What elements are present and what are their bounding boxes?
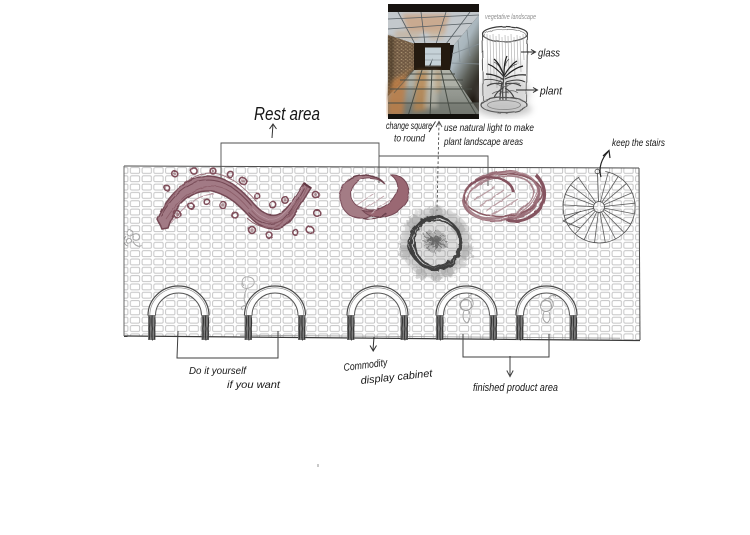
- svg-text:vegetative landscape: vegetative landscape: [485, 14, 536, 21]
- svg-text:Do it yourself: Do it yourself: [189, 365, 247, 377]
- svg-text:if you want: if you want: [227, 379, 281, 391]
- svg-text:use natural light to make: use natural light to make: [444, 122, 534, 134]
- svg-text:plant landscape areas: plant landscape areas: [443, 136, 523, 148]
- svg-text:to round: to round: [394, 133, 426, 145]
- svg-text:Rest area: Rest area: [254, 103, 320, 124]
- svg-text:keep the stairs: keep the stairs: [612, 138, 665, 149]
- svg-text:change square: change square: [386, 120, 432, 132]
- svg-text:finished product area: finished product area: [473, 382, 558, 394]
- svg-text:plant: plant: [539, 86, 563, 98]
- svg-text:glass: glass: [538, 48, 560, 60]
